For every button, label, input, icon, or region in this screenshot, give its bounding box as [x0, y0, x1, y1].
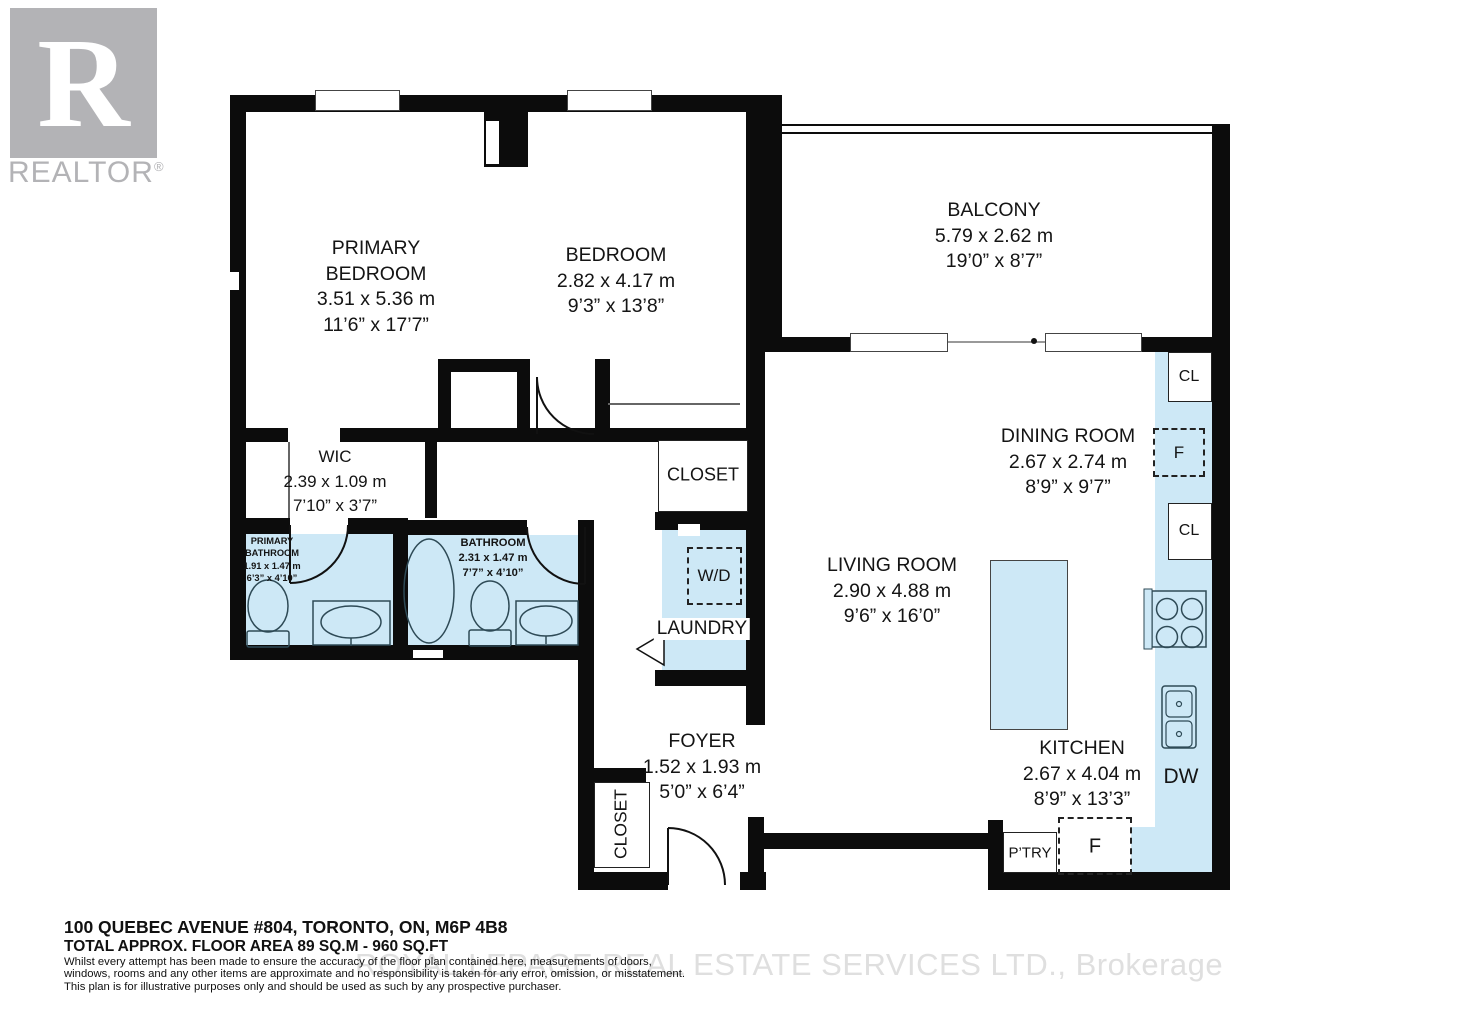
room-label-foyer: FOYER 1.52 x 1.93 m 5’0” x 6’4”: [643, 729, 761, 806]
door-arc-bathroom: [527, 527, 585, 584]
room-label-kitchen: KITCHEN 2.67 x 4.04 m 8’9” x 13’3”: [1023, 736, 1141, 813]
drain-icon: [1177, 702, 1182, 707]
door-arc-entry: [668, 828, 725, 885]
sink-basin-icon: [321, 606, 381, 638]
room-label-bedroom: BEDROOM 2.82 x 4.17 m 9’3” x 13’8”: [557, 243, 675, 320]
stove-icon: [1152, 591, 1206, 647]
closet-bedroom-label: CLOSET: [667, 465, 739, 486]
sink-bowl-icon: [1166, 721, 1192, 747]
fridge-kitchen-label: F: [1089, 836, 1101, 859]
room-label-primary-bedroom: PRIMARY BEDROOM 3.51 x 5.36 m 11’6” x 17…: [317, 236, 435, 338]
room-label-primary-bathroom: PRIMARY BATHROOM 1.91 x 1.47 m 6’3” x 4’…: [243, 535, 300, 584]
drain-icon: [1177, 732, 1182, 737]
fixtures-overlay: [0, 0, 1462, 1034]
dishwasher-label: DW: [1164, 765, 1199, 789]
closet-foyer-label: CLOSET: [611, 789, 632, 859]
pantry-label: P’TRY: [1008, 845, 1051, 862]
fridge-counter-label: F: [1174, 443, 1184, 463]
room-label-bathroom: BATHROOM 2.31 x 1.47 m 7’7” x 4’10”: [458, 536, 527, 581]
sink-basin-icon: [520, 606, 572, 636]
room-label-living-room: LIVING ROOM 2.90 x 4.88 m 9’6” x 16’0”: [827, 553, 957, 630]
washer-dryer-label: W/D: [697, 566, 730, 586]
toilet-tank-icon: [247, 631, 289, 647]
closet-lower-label: CL: [1179, 522, 1199, 540]
room-label-wic: WIC 2.39 x 1.09 m 7’10” x 3’7”: [283, 445, 386, 519]
door-arc-primary-bedroom: [537, 377, 594, 434]
closet-upper-label: CL: [1179, 368, 1199, 386]
room-label-balcony: BALCONY 5.79 x 2.62 m 19’0” x 8’7”: [935, 198, 1053, 275]
sink-bowl-icon: [1166, 691, 1192, 717]
toilet-icon: [471, 581, 509, 631]
toilet-tank-icon: [469, 630, 511, 646]
laundry-label: LAUNDRY: [654, 618, 750, 640]
floor-plan-canvas: R REALTOR®: [0, 0, 1462, 1034]
vanity-icon: [516, 601, 578, 645]
toilet-icon: [248, 580, 288, 632]
stove-panel-icon: [1144, 589, 1152, 649]
room-label-dining-room: DINING ROOM 2.67 x 2.74 m 8’9” x 9’7”: [1001, 424, 1135, 501]
bathtub-icon: [404, 539, 454, 643]
